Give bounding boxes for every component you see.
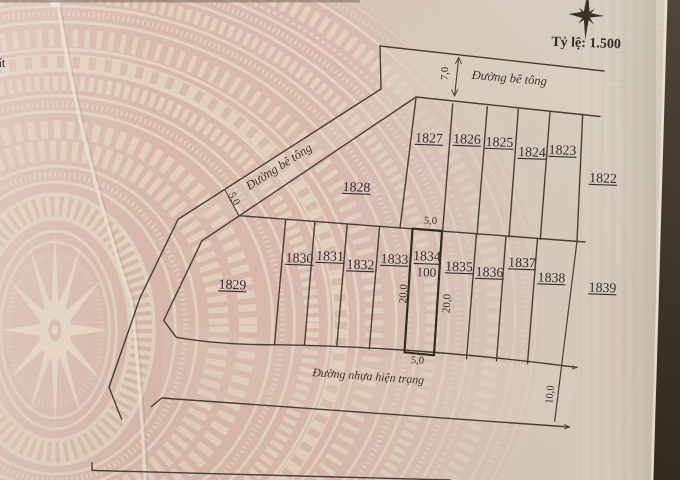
svg-text:1837: 1837 <box>508 255 536 271</box>
svg-text:7,0: 7,0 <box>440 67 451 81</box>
svg-text:ất: ất <box>0 55 6 70</box>
svg-text:Tỷ lệ: 1.500: Tỷ lệ: 1.500 <box>551 35 621 52</box>
svg-text:1838: 1838 <box>537 270 565 286</box>
svg-text:20,0: 20,0 <box>441 293 454 313</box>
svg-text:5,0: 5,0 <box>411 355 425 367</box>
svg-text:1834: 1834 <box>413 248 441 264</box>
svg-text:1833: 1833 <box>380 251 408 267</box>
svg-text:1829: 1829 <box>218 277 246 293</box>
svg-text:100: 100 <box>416 264 436 280</box>
svg-text:5,0: 5,0 <box>424 215 438 227</box>
svg-text:1825: 1825 <box>485 134 513 150</box>
svg-text:10,0: 10,0 <box>544 385 557 404</box>
svg-text:1827: 1827 <box>415 130 443 146</box>
svg-text:1826: 1826 <box>453 131 481 147</box>
svg-text:1828: 1828 <box>342 179 370 195</box>
svg-text:1839: 1839 <box>588 280 616 296</box>
svg-text:1822: 1822 <box>589 170 617 186</box>
svg-text:1832: 1832 <box>346 257 374 273</box>
svg-text:1823: 1823 <box>548 142 576 158</box>
svg-text:1835: 1835 <box>445 259 473 275</box>
svg-text:1830: 1830 <box>285 250 313 266</box>
svg-text:20,0: 20,0 <box>397 283 410 303</box>
svg-text:1836: 1836 <box>475 264 503 280</box>
svg-text:1824: 1824 <box>518 144 546 160</box>
svg-text:1831: 1831 <box>316 248 344 264</box>
